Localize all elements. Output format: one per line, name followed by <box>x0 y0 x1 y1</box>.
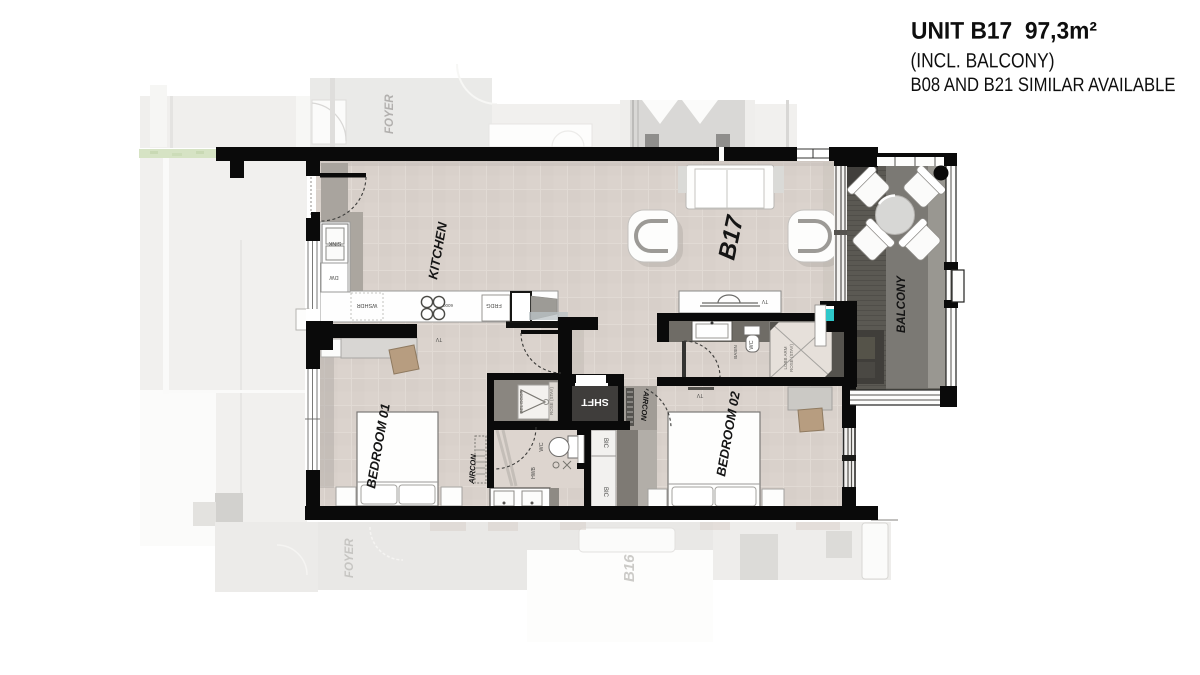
svg-text:TV: TV <box>761 298 768 304</box>
svg-text:HWB: HWB <box>531 467 537 479</box>
svg-text:BIC: BIC <box>602 438 608 449</box>
svg-text:DW: DW <box>329 274 339 280</box>
svg-text:WSHDR: WSHDR <box>357 302 378 308</box>
svg-text:ROSE (STAY): ROSE (STAY) <box>789 343 794 372</box>
svg-text:WC: WC <box>749 340 755 349</box>
svg-text:TV: TV <box>696 392 703 398</box>
svg-text:(INCL. BALCONY): (INCL. BALCONY) <box>910 49 1054 72</box>
svg-text:WC: WC <box>539 442 545 451</box>
svg-text:FOYER: FOYER <box>344 538 356 578</box>
svg-text:FOYER: FOYER <box>384 94 396 134</box>
svg-text:UNIT B17 97,3m²: UNIT B17 97,3m² <box>911 18 1097 45</box>
svg-text:B16: B16 <box>621 554 638 582</box>
svg-text:BALCONY: BALCONY <box>896 275 908 333</box>
svg-text:BASIN: BASIN <box>733 345 738 359</box>
svg-text:TV: TV <box>435 336 442 342</box>
svg-text:6000: 6000 <box>442 303 453 308</box>
svg-text:ROSE (STAY): ROSE (STAY) <box>549 386 554 415</box>
svg-text:SINK: SINK <box>328 240 341 246</box>
svg-text:LOBB ARM: LOBB ARM <box>783 346 788 369</box>
svg-text:B08 AND B21 SIMILAR AVAILABLE: B08 AND B21 SIMILAR AVAILABLE <box>910 74 1175 96</box>
svg-text:FRDG: FRDG <box>486 302 502 308</box>
svg-text:BIC: BIC <box>602 487 608 498</box>
svg-text:GEL DOOR: GEL DOOR <box>519 389 524 413</box>
svg-text:SHFT: SHFT <box>581 396 609 408</box>
